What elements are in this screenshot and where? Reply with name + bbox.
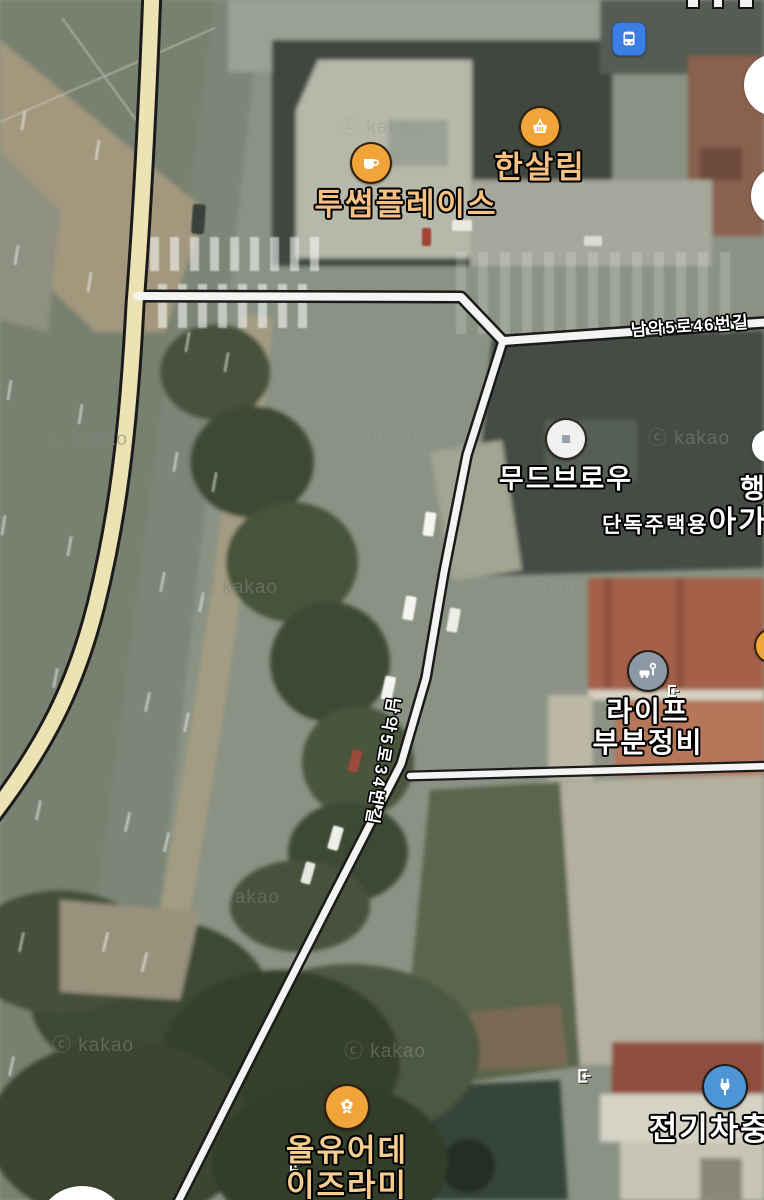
kakao-watermark: ⓒ kakao [336,421,418,448]
basket-glyph [528,115,552,139]
poi-hansalim[interactable]: 한살림 [440,106,640,186]
bus-stop-icon[interactable] [612,22,646,56]
kakao-watermark: ⓒ kakao [344,1036,426,1063]
poi-moodbrow[interactable]: 무드브로우 [466,418,666,494]
kakao-watermark: ⓒ kakao [500,572,582,599]
poi-label-detached-large: 아가들 [709,506,764,540]
store-dot-icon[interactable] [545,418,587,460]
poi-life-repair[interactable]: 라이프 부분정비 [548,650,748,759]
kakao-watermark: ⓒ kakao [46,424,128,451]
poi-label-moodbrow: 무드브로우 [499,464,633,494]
clipped-label-fragment [712,0,724,9]
plug-glyph [713,1075,737,1099]
poi-detached-housing[interactable]: 단독주택용 아가들 [602,506,764,540]
poi-label-all-u-day-2: 이즈라미 [286,1169,408,1200]
poi-label-repair: 부분정비 [592,727,703,758]
poi-label-twosome: 투썸플레이스 [314,188,497,223]
ev-plug-icon[interactable] [702,1064,748,1110]
flower-glyph [335,1095,359,1119]
poi-label-ev: 전기차충전 [649,1113,764,1148]
car-repair-icon[interactable] [627,650,669,692]
kakao-watermark: ⓒ kakao [198,882,280,909]
poi-ev-charging[interactable]: 전기차충전 [610,1064,764,1148]
poi-label-hansalim: 한살림 [494,151,586,186]
coffee-cup-icon[interactable] [350,142,392,184]
coffee-cup-glyph [359,151,383,175]
clipped-label-fragment [686,0,700,9]
poi-label-life: 라이프 [606,696,689,727]
poi-label-all-u-day-1: 올유어데 [286,1134,408,1169]
poi-all-u-day[interactable]: 올유어데 이즈라미 [227,1084,467,1200]
map-canvas[interactable]: ⓒ kakao ⓒ kakao ⓒ kakao ⓒ kakao ⓒ kakao … [0,0,764,1200]
car-wrench-glyph [636,659,660,683]
clipped-label-fragment [738,0,754,9]
flower-icon[interactable] [324,1084,370,1130]
entrance-marker-icon [576,1068,593,1085]
kakao-watermark: ⓒ kakao [52,1030,134,1057]
square-glyph [554,427,578,451]
poi-label-detached-small: 단독주택용 [602,514,709,538]
shopping-basket-icon[interactable] [519,106,561,148]
bus-icon [618,28,640,50]
poi-label-haeng-partial: 행 [740,474,764,504]
kakao-watermark: ⓒ kakao [196,572,278,599]
kakao-watermark: ⓒ kakao [340,112,422,139]
